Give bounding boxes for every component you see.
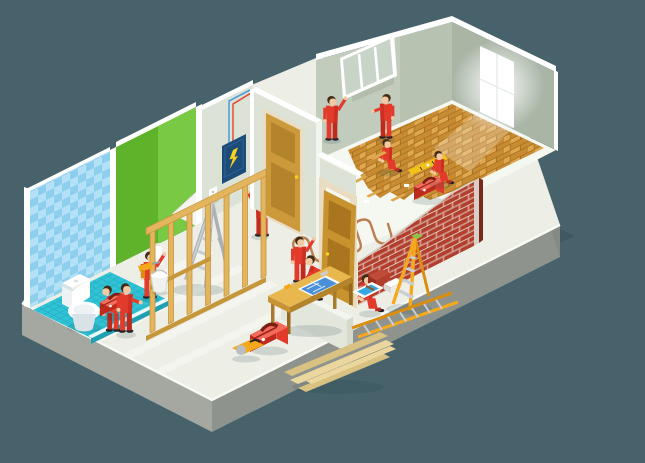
flush-button [73,280,78,282]
door-knob [326,252,330,256]
partition-door [263,108,303,236]
drill-handle [141,270,145,278]
brick-end-face [474,178,479,246]
partition-edge [250,90,254,210]
wall-edge [554,70,558,151]
brick-end-shade [479,178,483,243]
saw-blade-guard [236,345,246,355]
spacer [404,184,409,187]
bucket [151,270,168,296]
level-bubble [427,164,430,167]
wall-edge [24,187,30,308]
door-knob [295,175,299,179]
roll-end [155,243,161,246]
illustration-stage [0,0,645,463]
spacer [364,200,369,203]
wall-edge [110,147,116,268]
isometric-renovation-scene [0,0,645,463]
